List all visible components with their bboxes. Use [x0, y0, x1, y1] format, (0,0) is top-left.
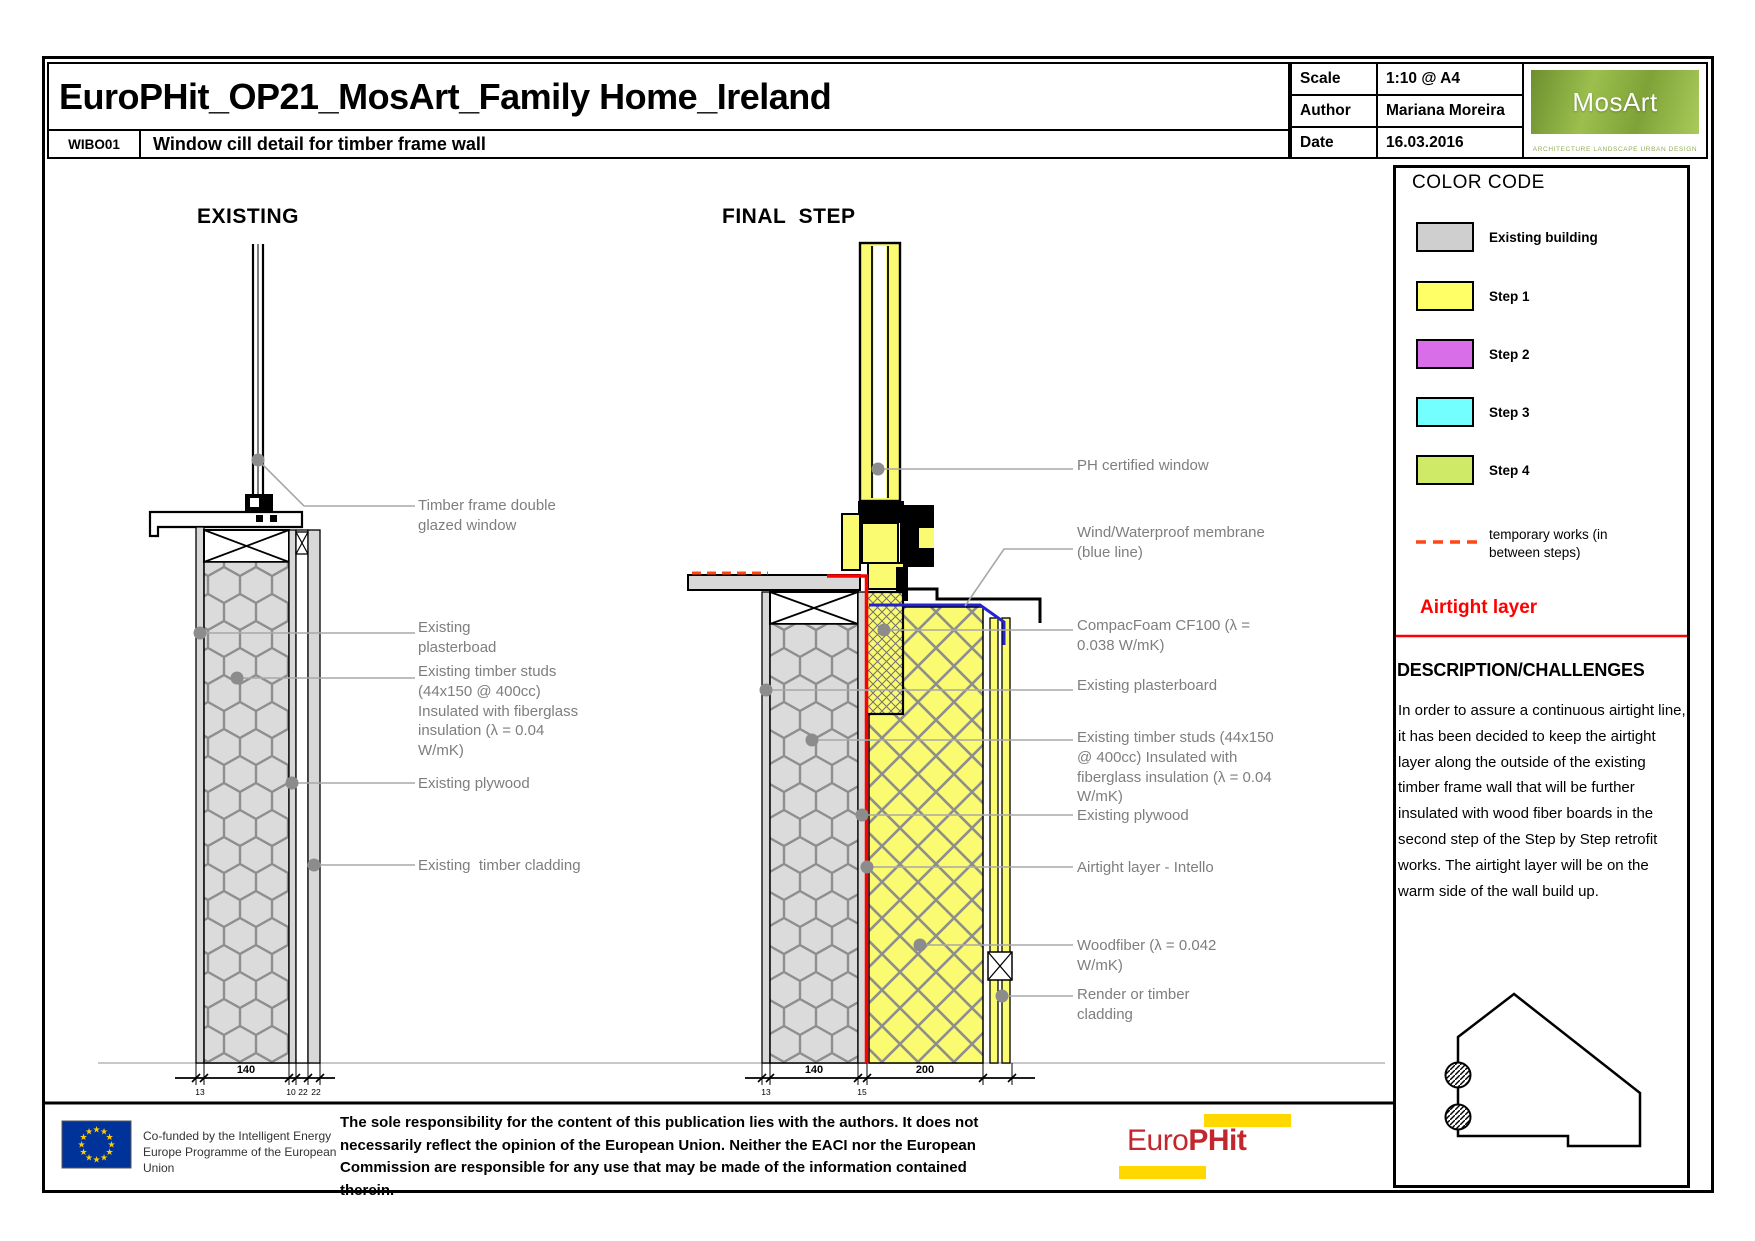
author-value: Mariana Moreira: [1376, 94, 1524, 128]
eu-star: ★: [92, 1155, 100, 1165]
legend-step-1: Step 1: [1489, 289, 1530, 304]
date-value: 16.03.2016: [1376, 126, 1524, 159]
existing-dimensions: 140 13 10 22 22: [175, 1063, 335, 1097]
existing-heading: EXISTING: [197, 205, 299, 229]
label-final-existing-plasterboard: Existing plasterboard: [1077, 676, 1287, 696]
label-existing-plasterboard: Existing plasterboad: [418, 618, 528, 658]
eu-cofunded-caption: Co-funded by the Intelligent Energy Euro…: [143, 1128, 338, 1177]
swatch-step-1: [1416, 281, 1474, 311]
final-dim-15: 15: [857, 1087, 867, 1097]
final-step-heading: FINAL STEP: [722, 205, 855, 229]
final-dim-13: 13: [761, 1087, 771, 1097]
eu-star: ★: [85, 1127, 93, 1137]
date-label: Date: [1290, 126, 1378, 159]
eu-flag-icon: ★★★★★★★★★★★★: [62, 1121, 131, 1168]
scale-value: 1:10 @ A4: [1376, 62, 1524, 96]
eu-star: ★: [100, 1153, 108, 1163]
legend-step-3: Step 3: [1489, 405, 1530, 420]
swatch-step-2: [1416, 339, 1474, 369]
existing-section-drawing: 140 13 10 22 22: [150, 244, 415, 1097]
label-woodfiber: Woodfiber (λ = 0.042 W/mK): [1077, 936, 1217, 976]
existing-dim-140: 140: [237, 1064, 255, 1076]
mosart-logo-image: MosArt: [1531, 70, 1699, 134]
europhit-logo-bar-bottom: [1119, 1166, 1206, 1179]
author-label: Author: [1290, 94, 1378, 128]
label-wind-waterproof-membrane: Wind/Waterproof membrane (blue line): [1077, 523, 1282, 563]
label-compacfoam: CompacFoam CF100 (λ = 0.038 W/mK): [1077, 616, 1257, 656]
legend-temporary-works: temporary works (in between steps): [1489, 526, 1629, 562]
label-existing-timber-studs: Existing timber studs (44x150 @ 400cc) I…: [418, 662, 593, 761]
legend-existing-building: Existing building: [1489, 230, 1598, 245]
europhit-logo: EuroPHit: [1127, 1124, 1246, 1158]
final-dim-200: 200: [916, 1064, 934, 1076]
existing-dim-10: 10: [286, 1087, 296, 1097]
final-step-section-drawing: 140 200 13 15: [688, 243, 1073, 1097]
europhit-logo-phit: PHit: [1188, 1124, 1246, 1157]
description-heading: DESCRIPTION/CHALLENGES: [1397, 660, 1645, 681]
drawing-sheet: 140 13 10 22 22: [0, 0, 1755, 1241]
label-airtight-intello: Airtight layer - Intello: [1077, 858, 1267, 878]
mosart-logo-caption: ARCHITECTURE LANDSCAPE URBAN DESIGN: [1524, 146, 1706, 153]
label-timber-frame-window: Timber frame double glazed window: [418, 496, 578, 536]
swatch-existing-building: [1416, 222, 1474, 252]
legend-step-2: Step 2: [1489, 347, 1530, 362]
label-existing-plywood: Existing plywood: [418, 774, 578, 794]
existing-dim-13: 13: [195, 1087, 205, 1097]
scale-label: Scale: [1290, 62, 1378, 96]
europhit-logo-euro: Euro: [1127, 1124, 1188, 1157]
mosart-logo: MosArt ARCHITECTURE LANDSCAPE URBAN DESI…: [1522, 62, 1708, 159]
project-title: EuroPHit_OP21_MosArt_Family Home_Ireland: [47, 62, 1290, 131]
final-dim-140: 140: [805, 1064, 823, 1076]
swatch-step-4: [1416, 455, 1474, 485]
label-render-or-timber-cladding: Render or timber cladding: [1077, 985, 1202, 1025]
existing-dim-22b: 22: [311, 1087, 321, 1097]
disclaimer-text: The sole responsibility for the content …: [340, 1112, 1002, 1202]
swatch-step-3: [1416, 397, 1474, 427]
label-ph-certified-window: PH certified window: [1077, 456, 1257, 476]
legend-step-4: Step 4: [1489, 463, 1530, 478]
label-final-existing-timber-studs: Existing timber studs (44x150 @ 400cc) I…: [1077, 728, 1292, 807]
label-existing-timber-cladding: Existing timber cladding: [418, 856, 638, 876]
final-dimensions: 140 200 13 15: [745, 1063, 1035, 1097]
existing-dim-22a: 22: [298, 1087, 308, 1097]
drawing-code: WIBO01: [47, 129, 141, 159]
drawing-title: Window cill detail for timber frame wall: [139, 129, 1290, 159]
color-code-heading: COLOR CODE: [1412, 172, 1545, 194]
description-body: In order to assure a continuous airtight…: [1398, 698, 1686, 904]
label-final-existing-plywood: Existing plywood: [1077, 806, 1257, 826]
airtight-layer-heading: Airtight layer: [1420, 597, 1537, 619]
mosart-logo-text: MosArt: [1572, 87, 1657, 118]
